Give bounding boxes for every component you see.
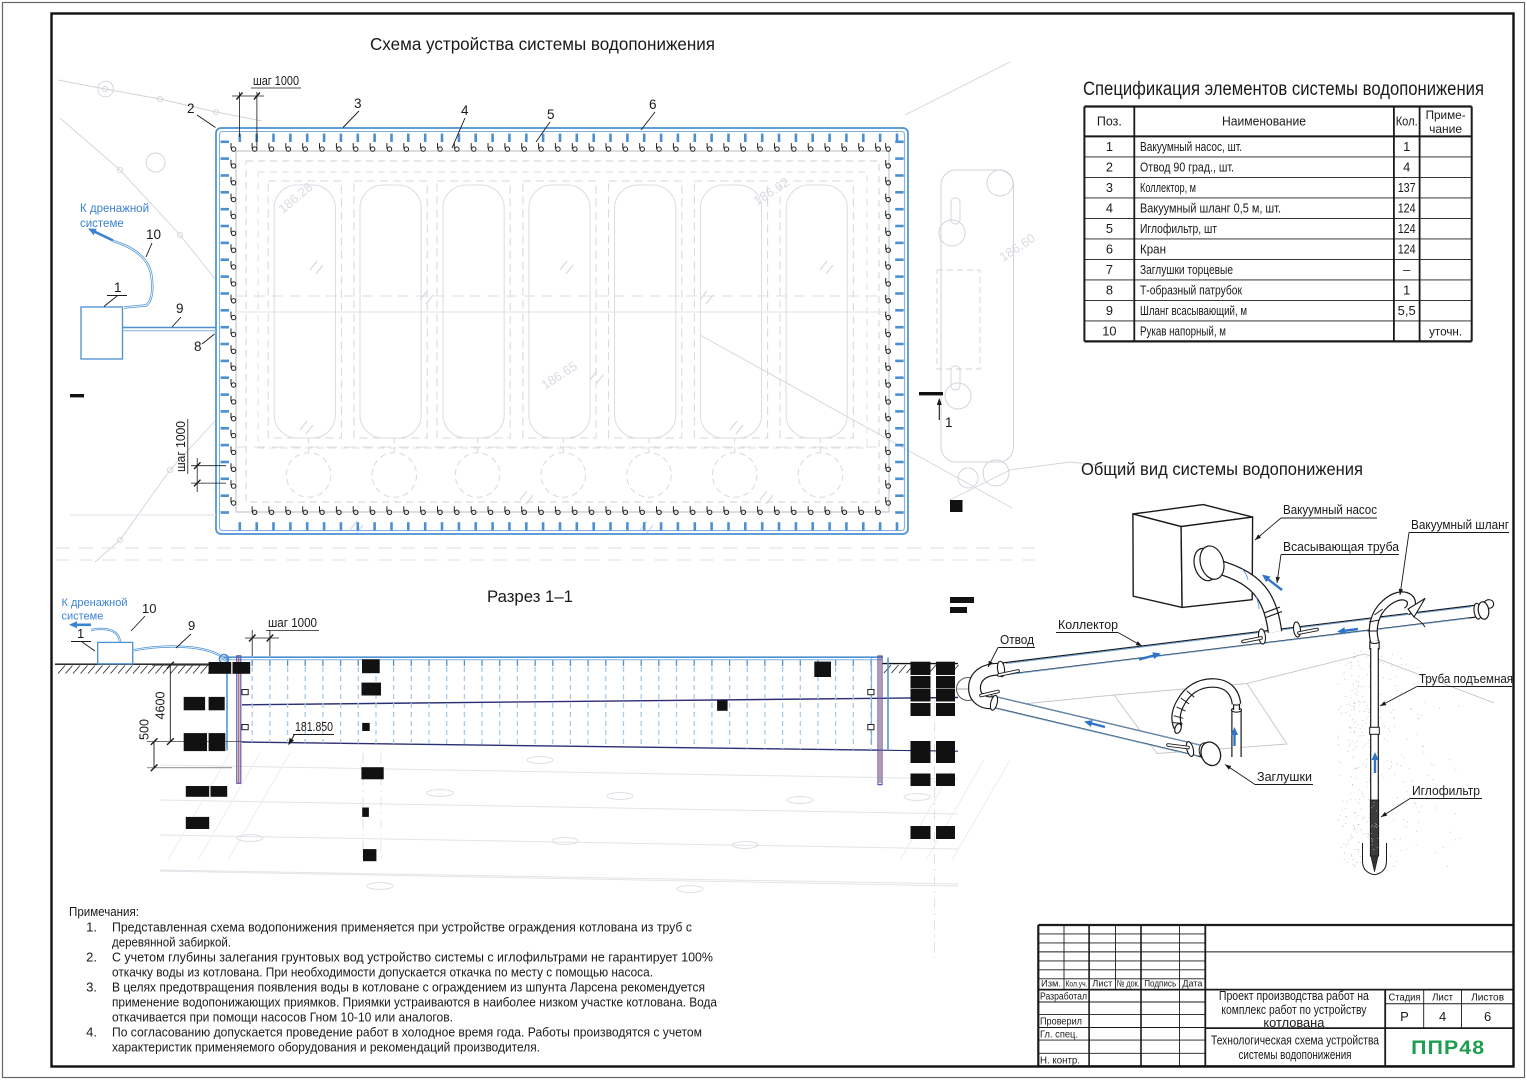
svg-text:8: 8: [1106, 283, 1113, 298]
svg-text:Стадия: Стадия: [1389, 993, 1421, 1004]
svg-text:Р: Р: [1400, 1009, 1409, 1024]
svg-text:Общий вид системы водопонижени: Общий вид системы водопонижения: [1081, 459, 1363, 479]
svg-text:Разработал: Разработал: [1040, 991, 1087, 1003]
svg-text:Примечания:: Примечания:: [69, 904, 139, 919]
svg-text:10: 10: [1102, 324, 1116, 339]
svg-text:Изм.: Изм.: [1041, 978, 1061, 989]
svg-text:–: –: [1403, 262, 1411, 277]
svg-text:8: 8: [194, 339, 202, 354]
svg-text:4: 4: [1403, 160, 1410, 175]
svg-text:3: 3: [1106, 180, 1113, 195]
svg-text:деревянной забиркой.: деревянной забиркой.: [112, 935, 231, 950]
svg-text:шаг 1000: шаг 1000: [253, 74, 299, 88]
svg-text:5: 5: [547, 107, 555, 122]
svg-text:Листов: Листов: [1471, 993, 1504, 1004]
svg-text:124: 124: [1398, 221, 1416, 236]
svg-text:9: 9: [188, 618, 195, 633]
svg-text:Кол.уч.: Кол.уч.: [1066, 978, 1088, 988]
svg-text:6: 6: [1106, 242, 1113, 257]
svg-text:137: 137: [1398, 180, 1416, 195]
svg-text:По согласованию допускается пр: По согласованию допускается проведение р…: [112, 1025, 702, 1040]
svg-text:10: 10: [142, 601, 156, 616]
svg-text:Труба подъемная: Труба подъемная: [1419, 671, 1513, 686]
svg-text:4: 4: [1439, 1009, 1446, 1024]
svg-text:системе: системе: [62, 611, 104, 623]
svg-text:1.: 1.: [86, 920, 97, 935]
svg-text:9: 9: [176, 301, 184, 316]
svg-text:4.: 4.: [86, 1025, 97, 1040]
svg-text:Кран: Кран: [1140, 242, 1166, 257]
svg-text:4600: 4600: [154, 691, 168, 719]
svg-text:шаг 1000: шаг 1000: [268, 616, 317, 630]
svg-text:К дренажной: К дренажной: [80, 203, 149, 215]
svg-text:системе: системе: [80, 218, 124, 230]
svg-text:1: 1: [77, 626, 84, 641]
svg-text:откачку воды из котлована. При: откачку воды из котлована. При необходим…: [112, 965, 653, 980]
svg-text:Заглушки торцевые: Заглушки торцевые: [1140, 262, 1233, 277]
svg-text:1: 1: [1403, 283, 1410, 298]
svg-text:Вакуумный насос: Вакуумный насос: [1283, 502, 1378, 517]
svg-text:500: 500: [138, 719, 152, 740]
svg-text:чание: чание: [1429, 122, 1462, 136]
svg-text:котлована: котлована: [1263, 1015, 1325, 1030]
svg-text:Всасывающая труба: Всасывающая труба: [1283, 539, 1400, 554]
svg-text:3: 3: [354, 96, 362, 111]
svg-text:Схема устройства системы водоп: Схема устройства системы водопонижения: [370, 34, 715, 54]
svg-text:2: 2: [187, 101, 195, 116]
svg-text:Приме-: Приме-: [1426, 108, 1466, 122]
svg-text:7: 7: [1106, 262, 1113, 277]
svg-text:Наименование: Наименование: [1222, 115, 1306, 129]
svg-text:Лист: Лист: [1432, 993, 1453, 1004]
svg-text:характеристик применяемого обо: характеристик применяемого оборудования …: [112, 1040, 540, 1055]
svg-text:1: 1: [114, 280, 122, 295]
svg-text:6: 6: [649, 97, 657, 112]
svg-text:Подпись: Подпись: [1144, 978, 1176, 989]
svg-text:ППР48: ППР48: [1411, 1037, 1485, 1059]
svg-text:6: 6: [1484, 1009, 1491, 1024]
svg-text:Вакуумный шланг 0,5 м, шт.: Вакуумный шланг 0,5 м, шт.: [1140, 201, 1281, 216]
svg-text:Заглушки: Заглушки: [1257, 769, 1312, 784]
svg-text:1: 1: [1106, 139, 1113, 154]
svg-text:5: 5: [1106, 221, 1113, 236]
svg-text:181.850: 181.850: [295, 720, 333, 734]
svg-text:Н. контр.: Н. контр.: [1040, 1056, 1080, 1067]
svg-text:1: 1: [1403, 139, 1410, 154]
svg-text:4: 4: [1106, 201, 1113, 216]
svg-text:В целях предотвращения появлен: В целях предотвращения появления воды в …: [112, 980, 705, 995]
svg-text:Коллектор: Коллектор: [1058, 617, 1118, 632]
svg-text:Лист: Лист: [1092, 978, 1113, 989]
svg-text:Разрез 1–1: Разрез 1–1: [487, 588, 573, 606]
svg-text:откачивается при помощи насосо: откачивается при помощи насосов Гном 10-…: [112, 1010, 453, 1025]
svg-text:Рукав напорный, м: Рукав напорный, м: [1140, 324, 1226, 339]
svg-text:9: 9: [1106, 303, 1113, 318]
svg-text:Вакуумный насос, шт.: Вакуумный насос, шт.: [1140, 139, 1242, 154]
svg-text:2.: 2.: [86, 950, 97, 965]
svg-text:Отвод 90 град., шт.: Отвод 90 град., шт.: [1140, 160, 1234, 175]
svg-text:4: 4: [461, 103, 469, 118]
svg-text:Иглофильтр, шт: Иглофильтр, шт: [1140, 221, 1217, 236]
svg-text:Гл. спец.: Гл. спец.: [1040, 1030, 1078, 1041]
svg-text:Проверил: Проверил: [1040, 1017, 1082, 1028]
svg-text:Вакуумный шланг: Вакуумный шланг: [1411, 517, 1509, 532]
svg-text:К дренажной: К дренажной: [62, 597, 128, 609]
svg-text:Дата: Дата: [1182, 978, 1203, 989]
svg-text:системы водопонижения: системы водопонижения: [1239, 1047, 1352, 1062]
svg-text:№ док.: № док.: [1117, 978, 1140, 989]
svg-text:Коллектор, м: Коллектор, м: [1140, 180, 1196, 195]
svg-text:Кол.: Кол.: [1396, 115, 1418, 129]
svg-text:Шланг всасывающий, м: Шланг всасывающий, м: [1140, 303, 1247, 318]
svg-text:Т-образный патрубок: Т-образный патрубок: [1140, 283, 1242, 298]
svg-text:Представленная схема водопониж: Представленная схема водопонижения приме…: [112, 920, 692, 935]
svg-text:Отвод: Отвод: [1000, 632, 1034, 647]
svg-text:124: 124: [1398, 201, 1416, 216]
svg-text:3.: 3.: [86, 980, 97, 995]
svg-text:С учетом глубины залегания гру: С учетом глубины залегания грунтовых вод…: [112, 950, 713, 965]
svg-text:2: 2: [1106, 160, 1113, 175]
svg-text:10: 10: [146, 227, 161, 242]
svg-text:Спецификация элементов системы: Спецификация элементов системы водопониж…: [1083, 79, 1484, 100]
svg-text:124: 124: [1398, 242, 1416, 257]
svg-text:1: 1: [945, 415, 953, 430]
svg-text:Проект производства работ на: Проект производства работ на: [1219, 988, 1370, 1003]
svg-text:Поз.: Поз.: [1097, 115, 1122, 129]
svg-text:Технологическая схема устройст: Технологическая схема устройства: [1211, 1033, 1380, 1048]
svg-text:Иглофильтр: Иглофильтр: [1412, 783, 1480, 798]
svg-text:шаг 1000: шаг 1000: [174, 421, 188, 472]
svg-text:5,5: 5,5: [1398, 303, 1416, 318]
svg-text:применение водопонижающих прия: применение водопонижающих приямков. Прия…: [112, 995, 718, 1010]
svg-text:уточн.: уточн.: [1429, 327, 1462, 339]
